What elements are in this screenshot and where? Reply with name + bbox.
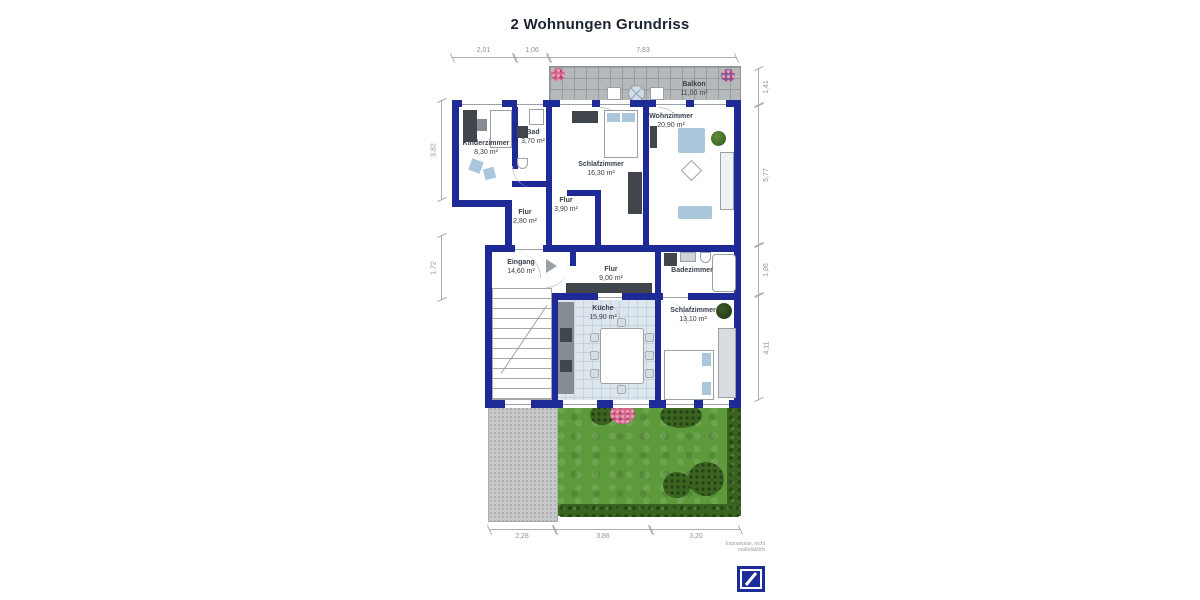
furniture-lowboard [678,206,712,219]
room-name: Badezimmer [671,267,713,274]
shower [529,109,544,125]
furniture-dresser [572,111,598,123]
garden-bush [688,462,724,496]
room-label-bad: Bad 3,70 m² [514,128,552,146]
dining-table [600,328,644,384]
toilet [700,252,711,263]
room-area: 3,70 m² [521,138,545,145]
dining-chair [645,369,654,378]
garden-hedge-bottom [558,504,741,517]
room-name: Flur [518,209,531,216]
disclaimer-text: Exposéplan, nicht maßstäblich [703,541,765,553]
garden-bush [663,472,691,498]
dimension-bottom-2: 3,86 [555,529,651,530]
dimension-label: 2,28 [489,533,555,540]
window [666,400,694,408]
room-name: Schlafzimmer [578,161,624,168]
door-opening [663,293,688,300]
room-name: Küche [592,305,613,312]
window [613,400,649,408]
dining-chair [590,369,599,378]
window [462,100,502,107]
furniture-cushion [468,158,483,173]
dimension-label: 4,11 [764,341,771,354]
room-area: 3,90 m² [554,206,578,213]
room-label-kueche: Küche 15,90 m² [578,304,628,322]
room-area: 13,10 m² [679,316,707,323]
room-label-flur-1: Flur 3,90 m² [542,196,590,214]
furniture-wardrobe [718,328,736,398]
room-name: Eingang [507,259,535,266]
balcony-chair [607,87,621,100]
dining-chair [590,333,599,342]
dining-chair [590,351,599,360]
room-area: 20,90 m² [657,122,685,129]
toilet [517,158,528,169]
dimension-label: 1,06 [515,47,549,54]
wall [595,190,601,245]
balcony-door [600,100,630,107]
dimension-right-4: 4,11 [758,295,759,400]
window [517,100,543,107]
garden-door [505,400,531,408]
room-label-kinderzimmer: Kinderzimmer 8,30 m² [450,139,522,157]
dimension-bottom-3: 3,20 [651,529,741,530]
room-area: 8,30 m² [474,149,498,156]
page-title: 2 Wohnungen Grundriss [0,16,1200,33]
kitchen-stove [560,328,572,342]
room-label-balkon: Balkon 11,00 m² [662,80,726,98]
wall [570,252,576,266]
floor-plan-page: 2 Wohnungen Grundriss 2,01 1,06 7,83 2,2… [0,0,1200,600]
dining-chair [617,385,626,394]
furniture-table [681,160,702,181]
dimension-right-2: 5,77 [758,105,759,245]
furniture-pillow [702,353,711,366]
room-name: Schlafzimmer [670,307,716,314]
dining-chair [645,351,654,360]
deutsche-bank-logo-icon [737,566,765,592]
kitchen-counter [558,302,574,394]
room-label-schlafzimmer-2: Schlafzimmer 13,10 m² [653,306,733,324]
garden-lawn [558,406,741,516]
furniture-wardrobe [628,172,642,214]
dimension-top-2: 1,06 [515,57,549,58]
bathroom-sink [680,252,696,262]
dimension-label: 7,83 [549,47,737,54]
washing-machine [664,253,677,266]
dimension-left-1: 3,82 [441,100,442,200]
window [560,100,592,107]
garden-hedge-right [727,406,741,516]
dimension-label: 2,01 [452,47,515,54]
dining-chair [645,333,654,342]
dimension-label: 1,72 [431,261,438,275]
room-name: Kinderzimmer [463,140,510,147]
dimension-top-3: 7,83 [549,57,737,58]
door-opening [515,245,543,252]
room-label-eingang: Eingang 14,60 m² [489,258,553,276]
room-area: 9,00 m² [599,275,623,282]
dimension-right-1: 1,41 [758,68,759,105]
plant [711,131,726,146]
staircase [492,288,552,400]
kitchen-sink [560,360,572,372]
balcony-door [656,100,686,107]
furniture-shelf [720,152,734,210]
furniture-chair [477,119,487,131]
window [703,400,729,408]
window [563,400,597,408]
room-name: Balkon [682,81,705,88]
dimension-label: 1,86 [764,263,771,277]
room-name: Wohnzimmer [649,113,693,120]
dimension-label: 3,20 [651,533,741,540]
deutsche-bank-logo [737,566,765,592]
room-label-flur-2: Flur 2,80 m² [504,208,546,226]
room-area: 16,30 m² [587,170,615,177]
room-label-flur-3: Flur 9,00 m² [586,265,636,283]
room-label-wohnzimmer: Wohnzimmer 20,90 m² [634,112,708,130]
room-name: Bad [526,129,539,136]
room-name: Flur [559,197,572,204]
garden-patio [488,406,558,522]
room-name: Flur [604,266,617,273]
dimension-label: 3,82 [431,143,438,157]
room-label-badezimmer: Badezimmer [662,266,722,275]
room-area: 15,90 m² [589,314,617,321]
furniture-sofa [678,128,705,153]
room-area: 11,00 m² [680,90,707,97]
balcony-flower-pot [551,68,565,81]
dimension-label: 5,77 [764,168,771,182]
furniture-desk [463,110,477,142]
dimension-top-1: 2,01 [452,57,515,58]
door-opening [598,293,622,300]
dimension-right-3: 1,86 [758,245,759,295]
dimension-label: 3,86 [555,533,651,540]
wall [452,200,512,207]
furniture-sideboard [566,283,652,293]
furniture-pillow [607,113,620,122]
dimension-bottom-1: 2,28 [489,529,555,530]
furniture-pillow [702,382,711,395]
dimension-label: 1,41 [764,80,771,94]
furniture-cushion [483,167,496,180]
room-area: 2,80 m² [513,218,537,225]
dimension-left-2: 1,72 [441,235,442,300]
room-area: 14,60 m² [507,268,535,275]
window [694,100,726,107]
room-label-schlafzimmer-1: Schlafzimmer 16,30 m² [558,160,644,178]
